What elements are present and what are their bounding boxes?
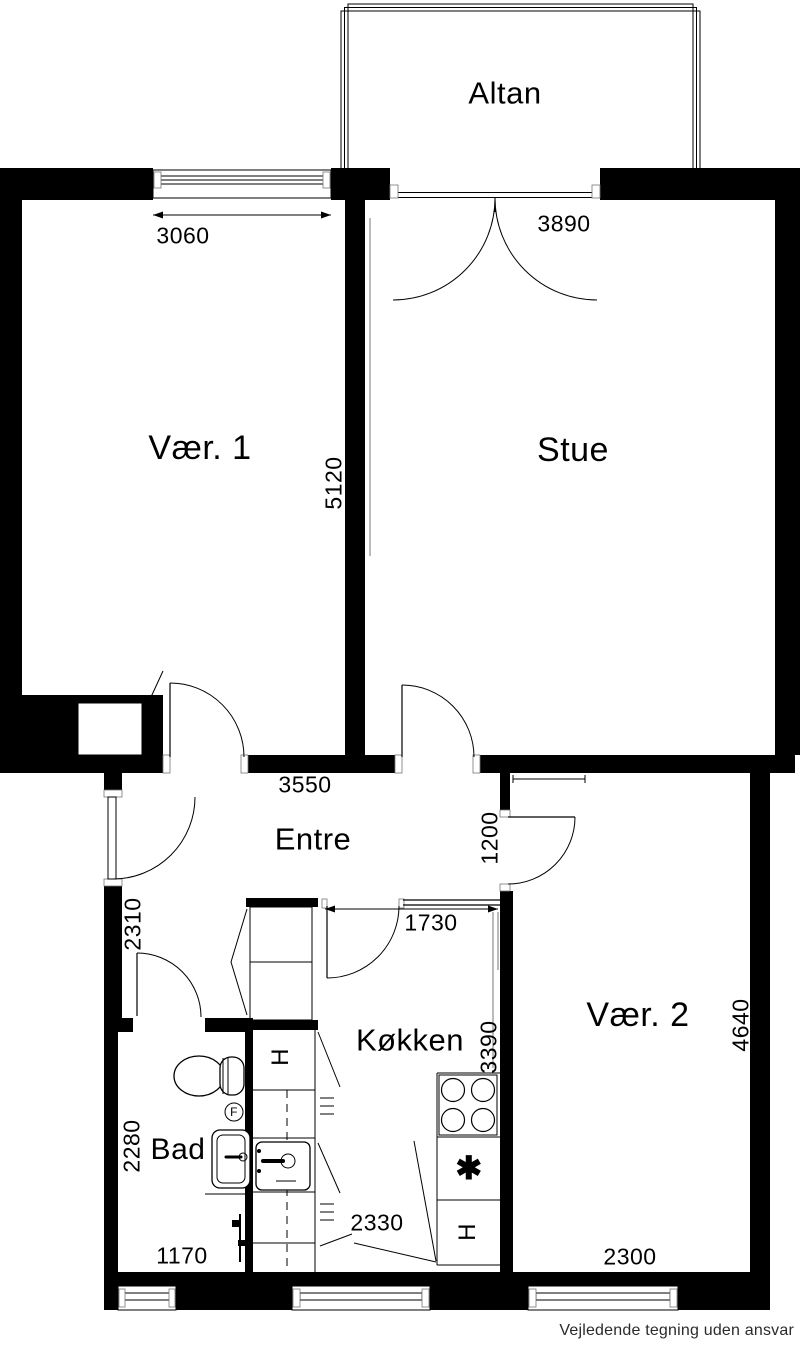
cabinet-top-bar	[246, 898, 318, 907]
dim-vaer1-window: 3060	[156, 225, 209, 248]
wall-top-right	[600, 168, 800, 200]
entre-cabinet	[231, 907, 312, 1020]
dim-vaer1-depth: 5120	[323, 456, 346, 509]
wall-bad-left	[104, 1018, 118, 1272]
washbasin-icon	[205, 1130, 250, 1194]
wall-entre-band-a	[248, 755, 395, 773]
duct-niche	[78, 703, 142, 755]
room-label-vaer1: Vær. 1	[148, 431, 251, 465]
dim-bad-width: 1170	[156, 1245, 207, 1268]
door-entrance	[108, 797, 195, 879]
door-vaer2	[508, 817, 575, 884]
wall-bad-top-a	[104, 1018, 133, 1032]
dim-vaer2-window: 2300	[603, 1246, 656, 1269]
window-bad	[118, 1286, 176, 1310]
door-vaer1	[170, 683, 244, 757]
toilet-icon	[174, 1056, 244, 1096]
room-label-altan: Altan	[468, 78, 541, 109]
kitchen-sink	[256, 1142, 310, 1190]
koekken-partition	[403, 900, 500, 905]
dim-entre-depth: 2310	[122, 897, 145, 950]
dim-stue-balcony-door: 3890	[537, 213, 590, 236]
dimension-lines	[153, 212, 585, 1069]
vent-ticks	[320, 1098, 334, 1220]
cabinet-symbol-upper: H	[269, 1048, 293, 1066]
cabinet-bottom-bar	[246, 1020, 318, 1030]
wall-koekken-vaer2	[500, 891, 513, 1272]
floorplan-canvas: Altan Vær. 1 Stue Entre Vær. 2 Køkken Ba…	[0, 0, 800, 1348]
freezer-star-symbol: ✱	[455, 1152, 482, 1184]
cabinet-symbol-lower: H	[456, 1223, 480, 1241]
floor-drain-label: F	[230, 1106, 238, 1118]
dim-koekken-depth: 3390	[478, 1020, 501, 1073]
wall-left	[0, 200, 22, 695]
room-label-stue: Stue	[537, 433, 609, 467]
wall-top-left	[0, 168, 153, 200]
dim-koekken-top: 1730	[404, 912, 457, 935]
window-koekken	[292, 1286, 430, 1310]
wall-entre-band-b	[480, 755, 795, 773]
window-vaer1	[153, 170, 331, 198]
stove-icon	[439, 1075, 497, 1135]
water-valve-icon	[232, 1214, 246, 1262]
wall-top-mid	[331, 168, 390, 200]
wall-right	[775, 200, 800, 755]
dim-vaer2-wall-segment: 1200	[479, 811, 502, 864]
room-label-bad: Bad	[151, 1135, 206, 1165]
room-label-entre: Entre	[275, 824, 352, 855]
dim-koekken-width: 2330	[350, 1212, 403, 1235]
wall-vaer1-stue	[345, 200, 365, 755]
door-bad	[137, 953, 201, 1017]
door-stue	[402, 685, 474, 757]
room-label-vaer2: Vær. 2	[586, 998, 689, 1032]
wall-bad-top-b	[205, 1018, 253, 1032]
window-vaer2	[528, 1286, 678, 1310]
dim-bad-depth: 2280	[121, 1119, 144, 1172]
dim-vaer2-depth: 4640	[730, 998, 753, 1051]
disclaimer-text: Vejledende tegning uden ansvar	[559, 1322, 794, 1340]
door-koekken	[327, 906, 399, 978]
dim-entre-width: 3550	[278, 774, 331, 797]
room-label-koekken: Køkken	[356, 1025, 464, 1056]
balcony-door-threshold	[390, 185, 600, 198]
